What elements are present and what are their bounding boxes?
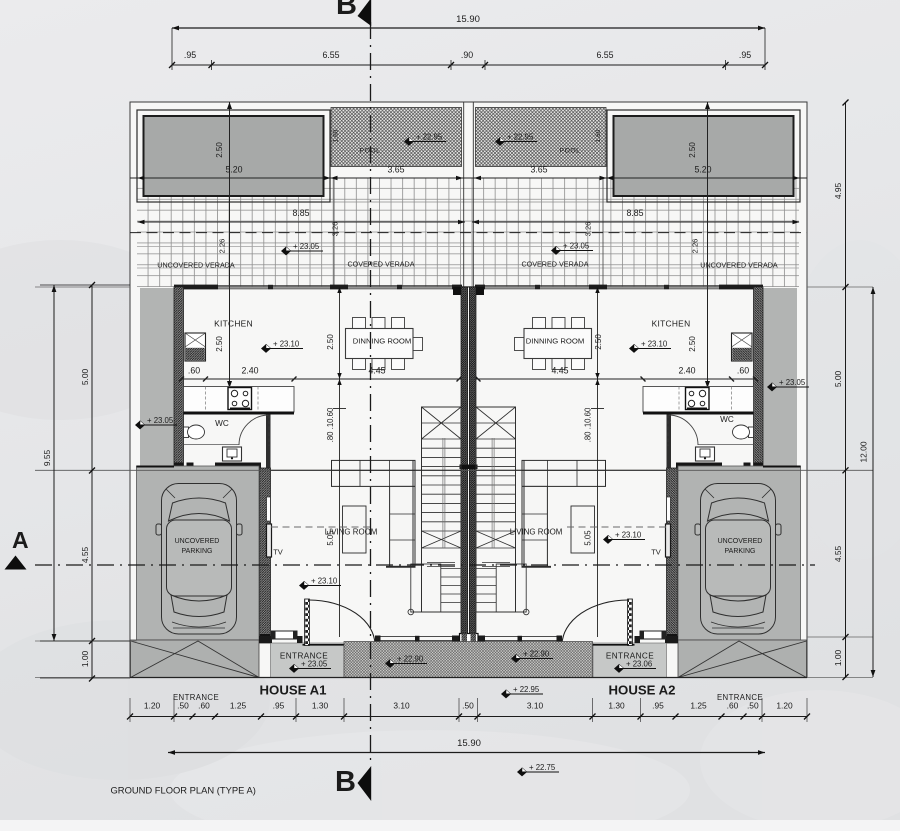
svg-text:KITCHEN: KITCHEN xyxy=(214,319,253,329)
svg-text:+ 22.95: + 22.95 xyxy=(513,685,540,694)
svg-text:1.60: 1.60 xyxy=(595,129,602,142)
svg-text:A: A xyxy=(12,527,29,553)
svg-text:2.50: 2.50 xyxy=(215,336,224,352)
svg-text:UNCOVERED: UNCOVERED xyxy=(718,538,763,545)
svg-text:5.05: 5.05 xyxy=(326,530,335,546)
svg-text:GROUND FLOOR PLAN (TYPE A): GROUND FLOOR PLAN (TYPE A) xyxy=(111,785,256,796)
svg-text:9.55: 9.55 xyxy=(42,450,52,467)
svg-text:POOL: POOL xyxy=(560,148,581,155)
svg-text:COVERED VERADA: COVERED VERADA xyxy=(347,260,414,269)
svg-text:+ 22.90: + 22.90 xyxy=(397,655,424,664)
svg-text:2.50: 2.50 xyxy=(594,334,603,350)
svg-text:2.50: 2.50 xyxy=(688,142,697,158)
svg-text:.50: .50 xyxy=(462,701,474,711)
svg-text:1.20: 1.20 xyxy=(776,701,793,711)
svg-text:PARKING: PARKING xyxy=(182,548,213,555)
svg-text:WC: WC xyxy=(215,419,229,428)
svg-text:UNCOVERED: UNCOVERED xyxy=(175,538,220,545)
svg-text:UNCOVERED VERADA: UNCOVERED VERADA xyxy=(157,261,235,270)
svg-text:4.55: 4.55 xyxy=(833,546,843,563)
svg-text:B: B xyxy=(336,0,357,21)
svg-text:COVERED VERADA: COVERED VERADA xyxy=(521,260,588,269)
svg-text:5.20: 5.20 xyxy=(694,165,711,175)
svg-text:4.55: 4.55 xyxy=(80,547,90,564)
svg-text:2.26: 2.26 xyxy=(691,239,700,254)
svg-text:1.20: 1.20 xyxy=(144,701,161,711)
svg-text:B: B xyxy=(335,766,356,798)
svg-text:15.90: 15.90 xyxy=(457,738,481,749)
svg-text:TV: TV xyxy=(273,548,283,557)
svg-text:+ 23.05: + 23.05 xyxy=(301,660,328,669)
svg-text:+ 23.05: + 23.05 xyxy=(147,416,174,425)
svg-text:ENTRANCE: ENTRANCE xyxy=(606,652,654,661)
svg-text:2.40: 2.40 xyxy=(678,366,695,376)
svg-text:5.00: 5.00 xyxy=(833,371,843,388)
svg-text:+ 23.05: + 23.05 xyxy=(293,242,320,251)
svg-text:.80 .10.60: .80 .10.60 xyxy=(584,407,593,442)
svg-text:15.90: 15.90 xyxy=(456,14,480,25)
svg-text:6.55: 6.55 xyxy=(596,50,613,60)
svg-text:.50: .50 xyxy=(177,701,189,711)
svg-text:12.00: 12.00 xyxy=(859,441,869,462)
svg-text:3.10: 3.10 xyxy=(393,701,410,711)
svg-text:2.50: 2.50 xyxy=(215,142,224,158)
svg-text:LIVING ROOM: LIVING ROOM xyxy=(510,528,563,537)
svg-text:.95: .95 xyxy=(652,701,664,711)
svg-text:8.85: 8.85 xyxy=(292,208,309,218)
svg-text:DINNING ROOM: DINNING ROOM xyxy=(353,337,412,346)
svg-text:ENTRANCE: ENTRANCE xyxy=(280,652,328,661)
svg-text:.60: .60 xyxy=(198,701,210,711)
svg-text:1.00: 1.00 xyxy=(833,650,843,667)
svg-text:4.95: 4.95 xyxy=(833,183,843,200)
svg-text:.95: .95 xyxy=(184,50,196,60)
svg-text:+ 23.10: + 23.10 xyxy=(615,531,642,540)
svg-text:2.50: 2.50 xyxy=(688,336,697,352)
svg-text:6.55: 6.55 xyxy=(322,50,339,60)
svg-text:3.10: 3.10 xyxy=(527,701,544,711)
svg-text:5.00: 5.00 xyxy=(80,369,90,386)
svg-text:+ 22.90: + 22.90 xyxy=(523,650,550,659)
svg-text:3.26: 3.26 xyxy=(331,222,340,237)
svg-text:.95: .95 xyxy=(273,701,285,711)
svg-text:POOL: POOL xyxy=(360,148,381,155)
svg-text:+ 23.10: + 23.10 xyxy=(273,340,300,349)
svg-text:UNCOVERED VERADA: UNCOVERED VERADA xyxy=(700,261,778,270)
svg-text:3.26: 3.26 xyxy=(584,222,593,237)
svg-text:1.25: 1.25 xyxy=(230,701,247,711)
svg-text:WC: WC xyxy=(720,415,734,424)
svg-text:2.26: 2.26 xyxy=(218,239,227,254)
svg-text:+ 23.06: + 23.06 xyxy=(626,660,652,669)
svg-text:+ 22.95: + 22.95 xyxy=(507,133,534,142)
svg-text:5.05: 5.05 xyxy=(584,530,593,546)
svg-text:1.25: 1.25 xyxy=(690,701,707,711)
svg-text:1.00: 1.00 xyxy=(80,651,90,668)
svg-text:4.45: 4.45 xyxy=(551,366,568,376)
svg-text:KITCHEN: KITCHEN xyxy=(652,319,691,329)
svg-text:+ 22.75: + 22.75 xyxy=(529,763,556,772)
svg-text:+ 23.10: + 23.10 xyxy=(311,577,338,586)
svg-text:1.30: 1.30 xyxy=(608,701,625,711)
svg-text:+ 23.10: + 23.10 xyxy=(641,340,668,349)
svg-text:PARKING: PARKING xyxy=(725,548,756,555)
svg-text:2.50: 2.50 xyxy=(326,334,335,350)
svg-text:+ 23.05: + 23.05 xyxy=(779,378,806,387)
svg-text:.50: .50 xyxy=(747,701,759,711)
svg-text:+ 22.95: + 22.95 xyxy=(416,133,443,142)
svg-text:TV: TV xyxy=(651,548,661,557)
svg-text:.90: .90 xyxy=(461,50,473,60)
svg-text:.60: .60 xyxy=(727,701,739,711)
svg-text:.95: .95 xyxy=(739,50,751,60)
svg-text:3.65: 3.65 xyxy=(530,165,547,175)
svg-text:4.45: 4.45 xyxy=(368,366,385,376)
svg-text:5.20: 5.20 xyxy=(225,165,242,175)
svg-text:DINNING ROOM: DINNING ROOM xyxy=(526,337,585,346)
svg-text:HOUSE A2: HOUSE A2 xyxy=(609,683,676,698)
svg-text:8.85: 8.85 xyxy=(626,208,643,218)
svg-text:2.40: 2.40 xyxy=(241,366,258,376)
svg-text:1.60: 1.60 xyxy=(333,129,340,142)
svg-text:+ 23.05: + 23.05 xyxy=(563,242,590,251)
svg-text:.60: .60 xyxy=(188,366,200,376)
svg-text:3.65: 3.65 xyxy=(387,165,404,175)
svg-text:HOUSE A1: HOUSE A1 xyxy=(260,683,327,698)
svg-text:1.30: 1.30 xyxy=(312,701,329,711)
svg-text:.60: .60 xyxy=(737,366,749,376)
svg-text:.80 .10.60: .80 .10.60 xyxy=(326,407,335,442)
